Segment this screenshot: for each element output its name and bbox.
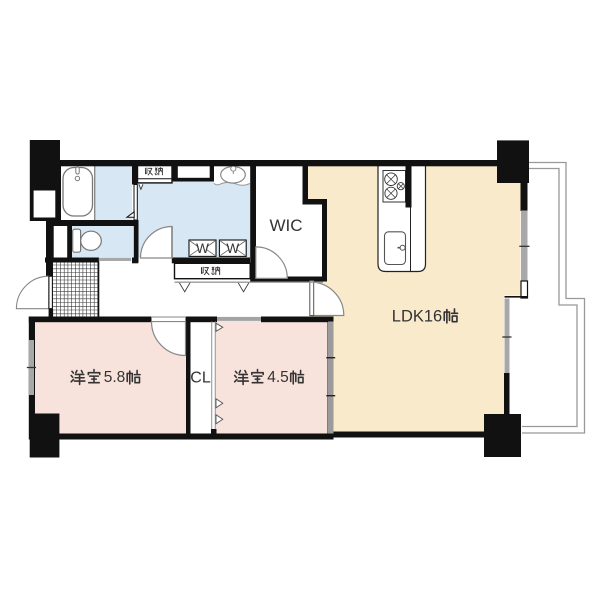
svg-text:W: W bbox=[196, 241, 209, 256]
svg-text:CL: CL bbox=[190, 370, 211, 387]
svg-text:5.8: 5.8 bbox=[104, 369, 126, 386]
svg-text:4.5: 4.5 bbox=[267, 369, 289, 386]
svg-text:WIC: WIC bbox=[269, 216, 302, 235]
svg-text:W: W bbox=[226, 241, 239, 256]
svg-text:LDK16: LDK16 bbox=[392, 308, 442, 326]
